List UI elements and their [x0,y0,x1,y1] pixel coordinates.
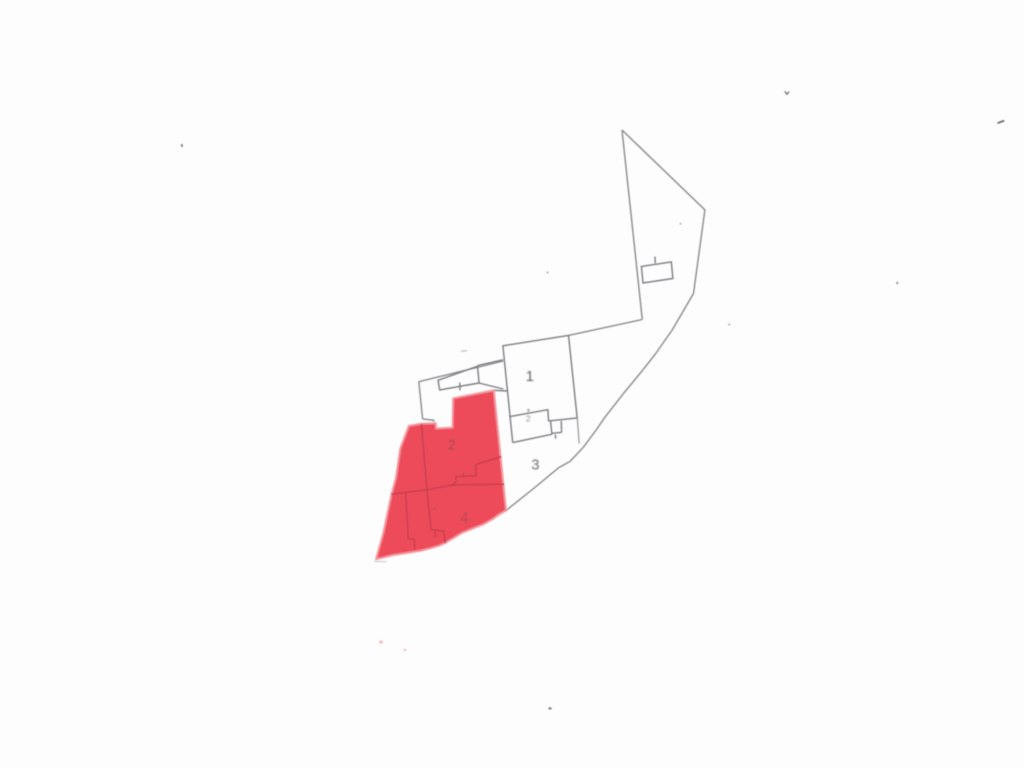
svg-text:1: 1 [526,368,534,385]
svg-text:3: 3 [531,457,539,473]
svg-text:2: 2 [526,413,531,423]
svg-text:2: 2 [448,437,456,452]
svg-text:4: 4 [460,510,469,527]
